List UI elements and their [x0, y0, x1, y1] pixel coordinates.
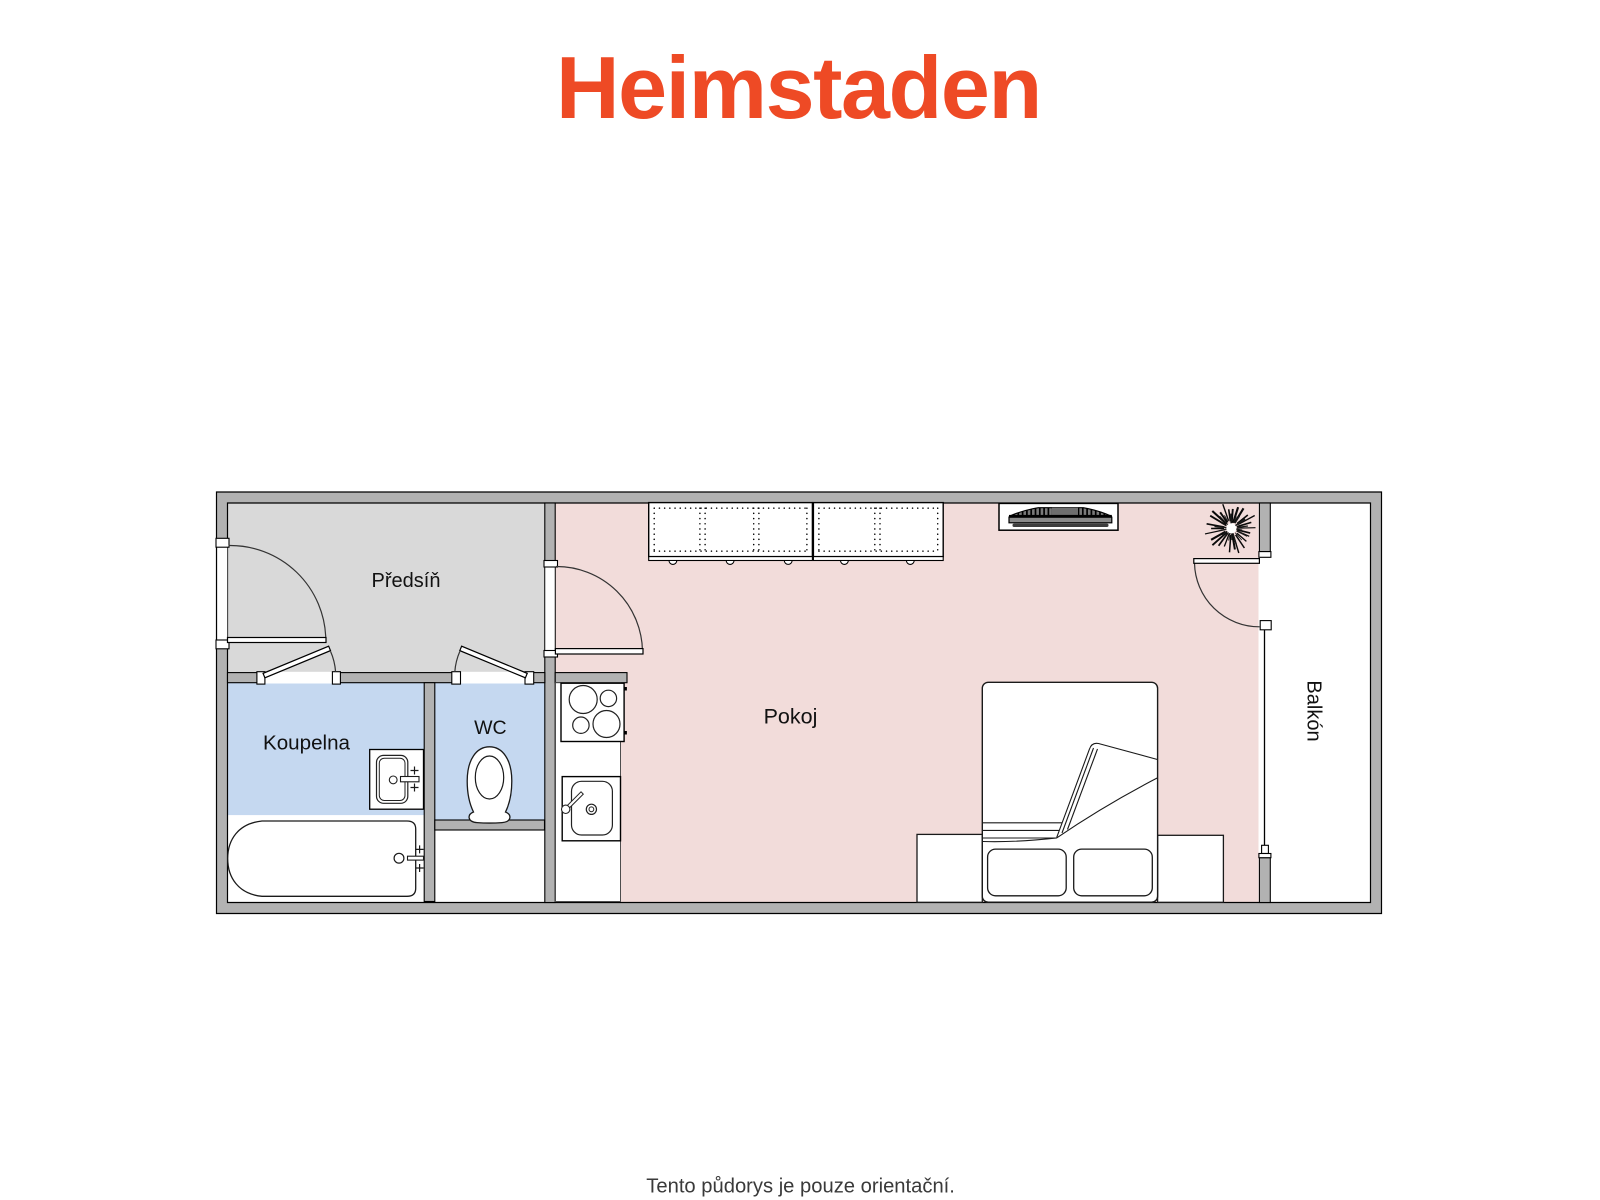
svg-text:Tento půdorys je pouze orienta: Tento půdorys je pouze orientační. [646, 1175, 955, 1197]
svg-text:Koupelna: Koupelna [263, 732, 351, 755]
svg-text:Heimstaden: Heimstaden [556, 38, 1041, 137]
svg-text:WC: WC [474, 717, 507, 739]
svg-text:Pokoj: Pokoj [764, 705, 818, 729]
svg-text:Balkón: Balkón [1303, 680, 1325, 741]
svg-text:Předsíň: Předsíň [372, 570, 441, 592]
